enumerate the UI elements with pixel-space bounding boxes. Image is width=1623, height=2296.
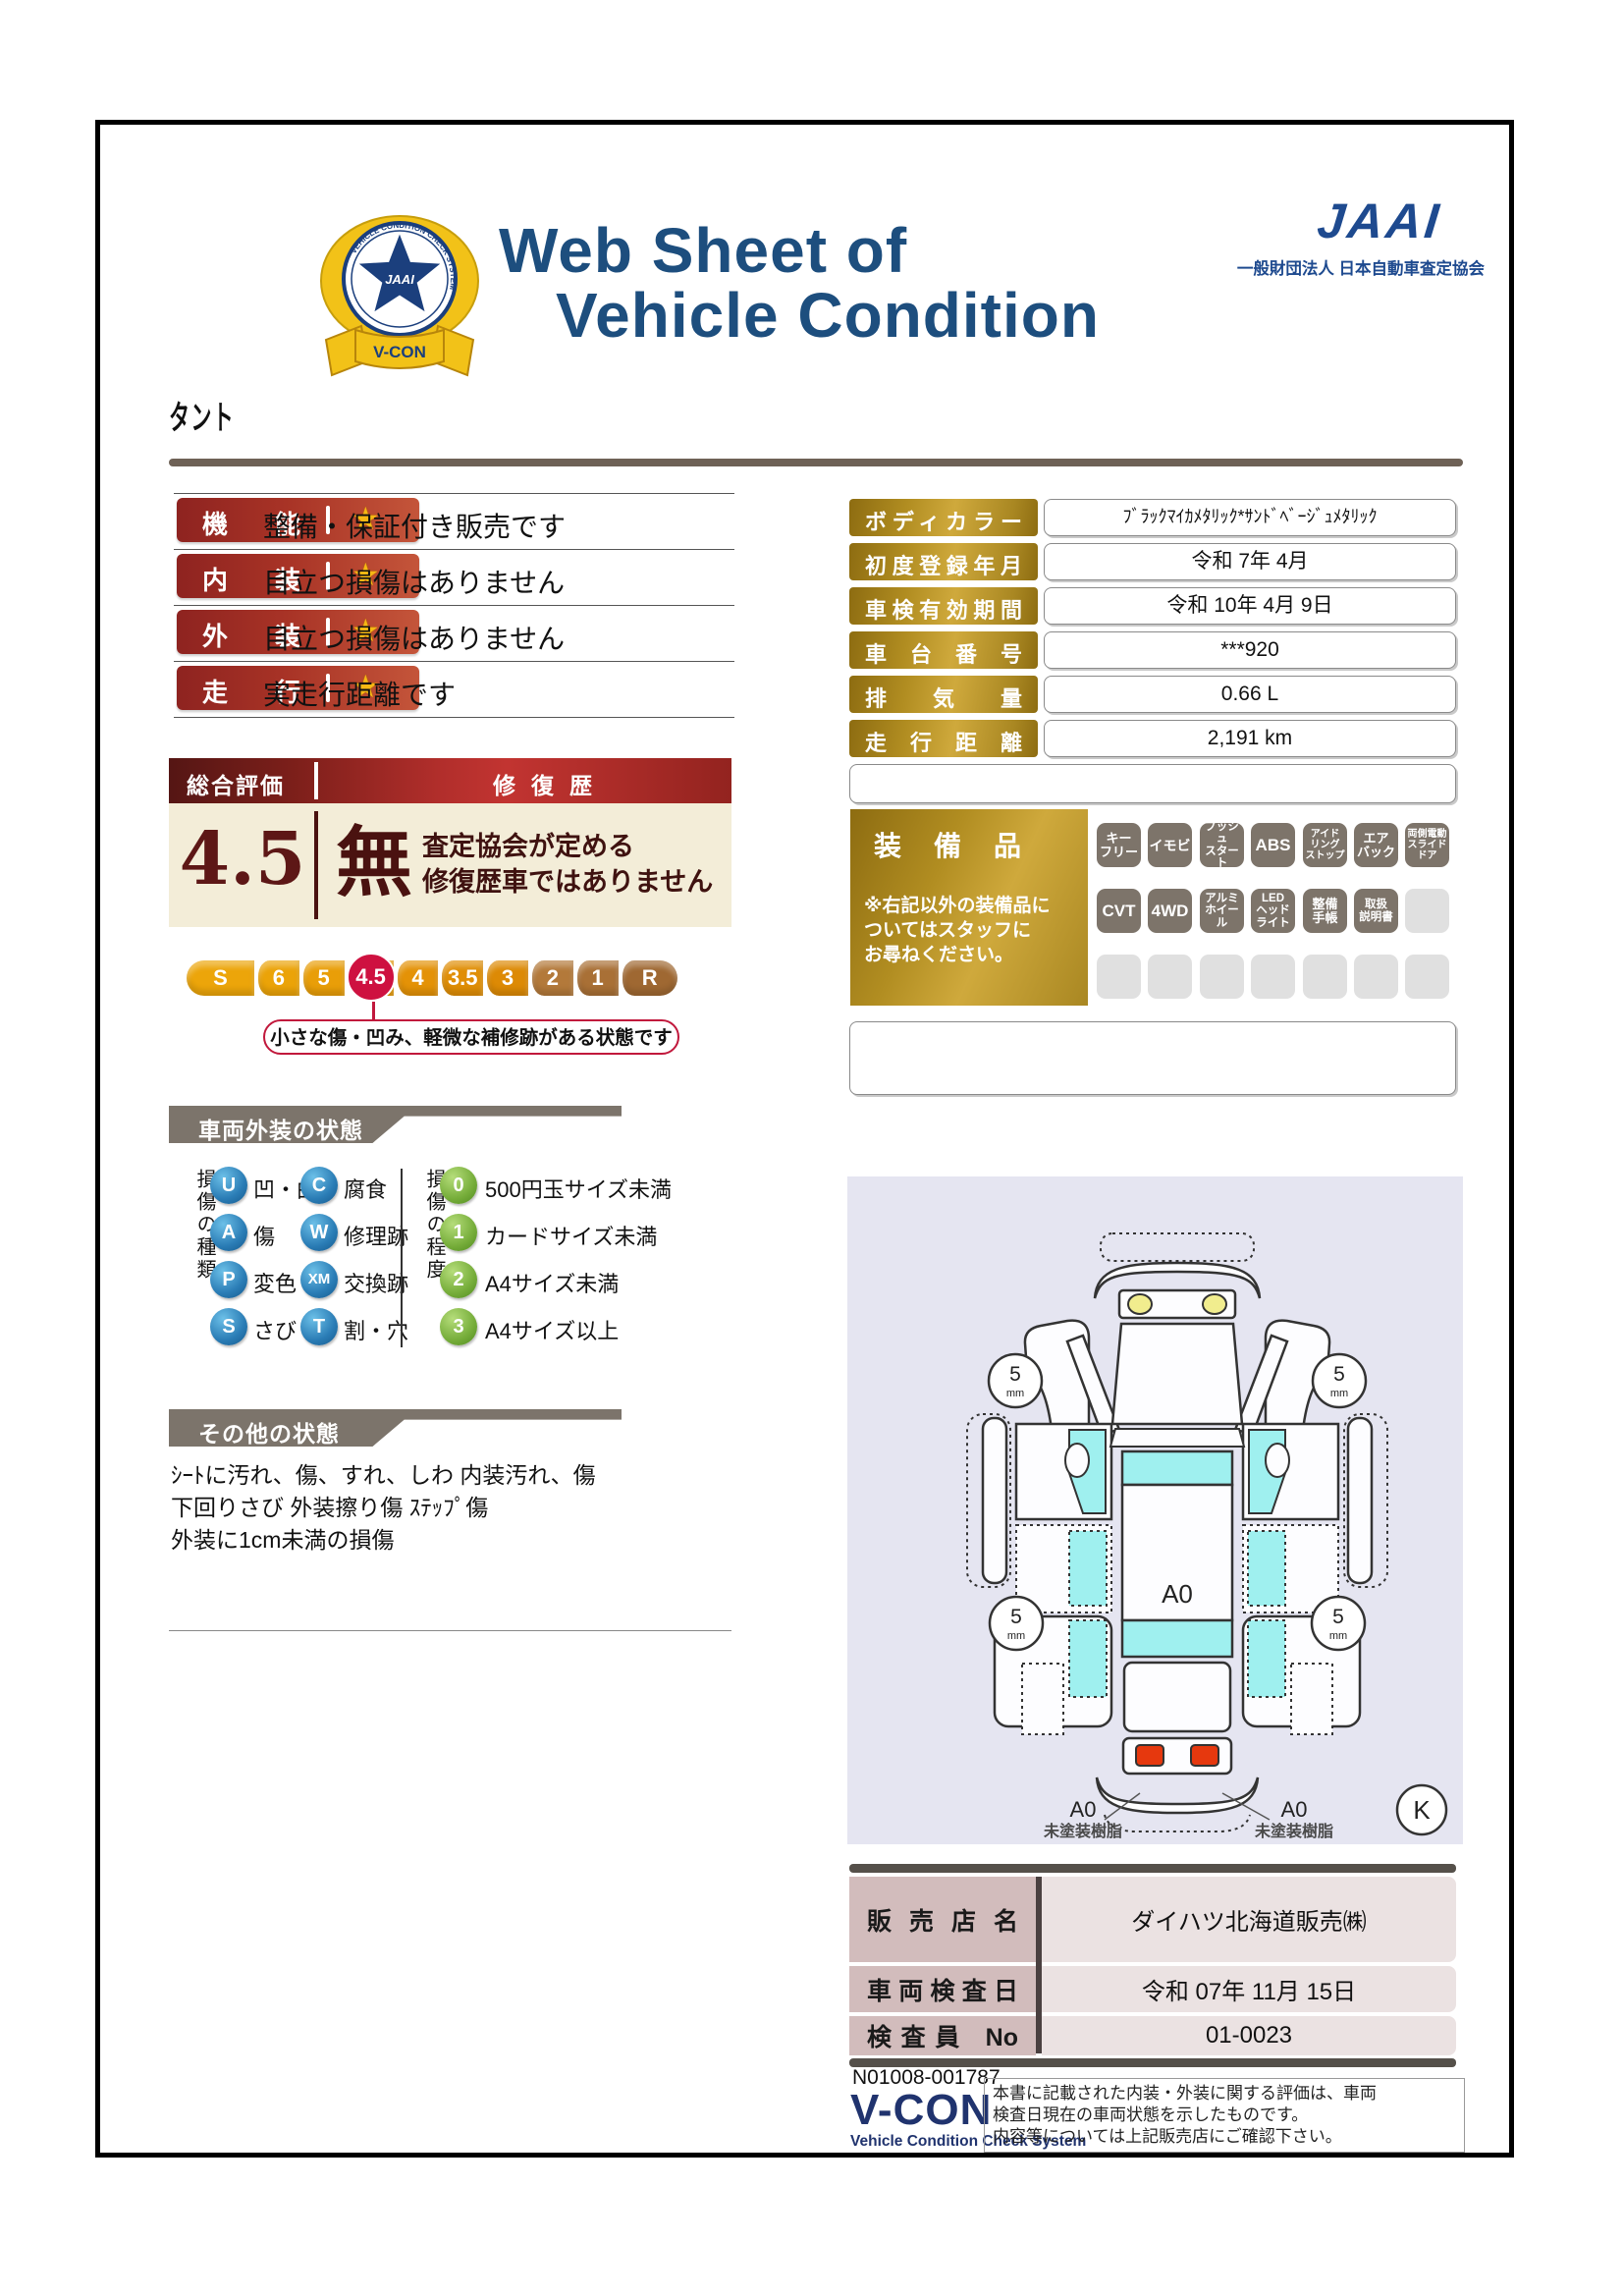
damage-type-name: 変色 [253,1267,297,1298]
detail-label-displacement: 排気量 [849,676,1038,713]
damage-type-U-icon: U [210,1167,247,1204]
empty-field-box [849,1021,1456,1095]
damage-type-P-icon: P [210,1261,247,1298]
rating-desc: 整備・保証付き販売です [263,506,566,545]
equip-cvt: CVT [1097,889,1141,933]
jaai-org-name: 一般財団法人 日本自動車査定協会 [1188,255,1485,279]
equip-empty-slot [1251,955,1295,999]
tail-light-right [1191,1745,1218,1766]
scale-seg-4.5-selected: 4.5 [345,960,394,996]
title-divider-bar [169,459,1463,466]
inspection-date-value: 令和 07年 11月 15日 [1042,1966,1456,2012]
damage-degree-3-icon: 3 [440,1308,477,1345]
repair-history-label: 修復歴 [493,767,608,800]
dealer-label-text: 販売店名 [867,1902,1018,1938]
equip-owners-manual: 取扱 説明書 [1354,889,1398,933]
rating-divider [174,549,734,550]
equip-empty-slot [1405,955,1449,999]
detail-label-first-registration: 初度登録年月 [849,543,1038,580]
detail-label-text: 車検有効期間 [865,598,1022,623]
equip-led-headlights: LED ヘッド ライト [1251,889,1295,933]
cowl [1110,1429,1244,1447]
equip-airbag: エア バック [1354,823,1398,867]
damage-type-name: さび [253,1314,297,1345]
exterior-condition-title: 車両外装の状態 [198,1112,363,1145]
dealer-label-text: 車両検査日 [867,1972,1018,2007]
tread-unit: mm [1330,1388,1348,1399]
scale-seg-S: S [187,960,254,996]
detail-label-chassis-number: 車台番号 [849,631,1038,669]
score-scale: S 6 5 4.5 4 3.5 3 2 1 R [187,960,677,996]
score-callout: 小さな傷・凹み、軽微な補修跡がある状態です [263,1019,679,1055]
dealer-name-label: 販売店名 [849,1877,1036,1962]
sheet-title-line2: Vehicle Condition [556,279,1100,352]
car-damage-diagram: A0 5 mm 5 mm 5 mm 5 mm A0 未塗装樹脂 A0 未塗装樹脂 [847,1176,1463,1844]
repair-history-note: 査定協会が定める 修復歴車ではありません [422,829,713,900]
inspector-no-label: 検査員 No [849,2016,1036,2055]
equip-4wd: 4WD [1148,889,1192,933]
detail-value-bodycolor: ﾌﾞﾗｯｸﾏｲｶﾒﾀﾘｯｸ*ｻﾝﾄﾞﾍﾞｰｼﾞｭﾒﾀﾘｯｸ [1044,499,1456,536]
dealer-table-top-bar [849,1864,1456,1873]
detail-value-displacement: 0.66 L [1044,676,1456,713]
damage-degree-0-icon: 0 [440,1167,477,1204]
scale-seg-3: 3 [483,960,528,996]
overall-header: 総合評価点 修復歴 [169,758,731,803]
tread-unit: mm [1007,1630,1025,1642]
legend-divider [401,1169,403,1347]
tread-value: 5 [1332,1606,1344,1628]
rating-desc: 目立つ損傷はありません [263,618,565,657]
damage-type-A-icon: A [210,1214,247,1251]
selected-score-marker: 4.5 [347,953,396,1002]
headlight-right [1203,1294,1226,1314]
equip-empty-slot [1148,955,1192,999]
damage-degree-name: 500円玉サイズ未満 [485,1173,672,1204]
vehicle-name: タント [169,391,235,439]
detail-label-text: ボディカラー [865,510,1022,534]
equip-idling-stop: アイド リング ストップ [1303,823,1347,867]
overall-body-divider [314,811,318,919]
tread-value: 5 [1010,1606,1022,1628]
disclaimer-note: 本書に記載された内装・外装に関する評価は、車両 検査日現在の車両状態を示したもの… [984,2078,1465,2153]
equipment-note: ※右記以外の装備品に ついてはスタッフに お尋ねください。 [864,894,1050,967]
detail-value-first-registration: 令和 7年 4月 [1044,543,1456,580]
detail-value-chassis-number: ***920 [1044,631,1456,669]
windshield [1112,1324,1242,1424]
other-condition-title: その他の状態 [198,1415,340,1449]
rating-divider [174,717,734,718]
damage-degree-name: カードサイズ未満 [485,1220,657,1251]
equip-empty-slot [1303,955,1347,999]
equip-empty-slot [1097,955,1141,999]
equipment-panel: 装備品 ※右記以外の装備品に ついてはスタッフに お尋ねください。 [850,809,1088,1006]
inspector-no-value: 01-0023 [1042,2016,1456,2055]
empty-field-box [849,764,1456,803]
overall-score: 4.5 [169,817,316,902]
dealer-name-value: ダイハツ北海道販売㈱ [1042,1877,1456,1962]
quarter-window-left [1069,1620,1107,1697]
equip-abs: ABS [1251,823,1295,867]
damage-degree-2-icon: 2 [440,1261,477,1298]
scale-seg-3.5: 3.5 [438,960,483,996]
damage-degree-name: A4サイズ未満 [485,1267,619,1298]
scale-seg-5: 5 [299,960,345,996]
damage-type-name: 修理跡 [344,1220,408,1251]
scale-seg-1: 1 [573,960,619,996]
equip-immobilizer: イモビ [1148,823,1192,867]
damage-type-XM-icon: XM [300,1261,338,1298]
damage-type-W-icon: W [300,1214,338,1251]
unpainted-resin-note-left: 未塗装樹脂 [1043,1822,1122,1840]
damage-type-name: 傷 [253,1220,275,1251]
rating-desc: 目立つ損傷はありません [263,562,565,601]
corner-mark: K [1413,1795,1431,1825]
dealer-table-divider [1036,1877,1042,2053]
damage-type-name: 交換跡 [344,1267,408,1298]
damage-degree-1-icon: 1 [440,1214,477,1251]
detail-value-inspection-period: 令和 10年 4月 9日 [1044,587,1456,625]
detail-label-text: 走行距離 [865,731,1022,755]
damage-type-T-icon: T [300,1308,338,1345]
vehicle-condition-sheet: VEHICLE CONDITION CHECK SYSTEM JAAI V-CO… [0,0,1623,2296]
repair-history-value: 無 [336,811,412,913]
detail-label-inspection-period: 車検有効期間 [849,587,1038,625]
equip-keyfree: キー フリー [1097,823,1141,867]
mirror-left [1065,1444,1089,1477]
rating-divider [174,493,734,494]
tread-value: 5 [1333,1363,1345,1386]
equip-service-book: 整備 手帳 [1303,889,1347,933]
equip-empty-slot [1200,955,1244,999]
detail-label-text: 初度登録年月 [865,554,1022,578]
equipment-title: 装備品 [874,825,1021,864]
tread-unit: mm [1329,1630,1347,1642]
roof-glass-front [1122,1451,1232,1485]
rear-window-left [1069,1531,1107,1606]
tail-light-left [1136,1745,1163,1766]
detail-label-text: 排気量 [865,686,1022,711]
damage-type-name: 割・穴 [344,1314,408,1345]
equip-empty-slot [1354,955,1398,999]
rating-divider [174,605,734,606]
damage-degree-name: A4サイズ以上 [485,1314,619,1345]
bumper-damage-label-right: A0 [1281,1797,1308,1822]
overall-body: 4.5 無 査定協会が定める 修復歴車ではありません [169,803,731,927]
rating-desc: 実走行距離です [263,674,456,713]
equip-push-start: プッシュ スタート [1200,823,1244,867]
tread-unit: mm [1006,1388,1024,1399]
damage-type-name: 腐食 [344,1173,387,1204]
equip-empty-slot [1405,889,1449,933]
overall-header-divider [314,762,318,799]
unpainted-resin-note-right: 未塗装樹脂 [1254,1822,1333,1840]
rating-divider [174,661,734,662]
callout-pointer [372,1002,375,1019]
detail-value-mileage: 2,191 km [1044,720,1456,757]
scale-seg-R: R [619,960,677,996]
damage-type-C-icon: C [300,1167,338,1204]
section-divider [169,1630,731,1631]
dealer-label-text: 検査員 No [867,2018,1018,2053]
rear-window-right [1248,1531,1285,1606]
emblem-ribbon-text: V-CON [373,343,426,361]
rear-glass [1122,1620,1232,1657]
sheet-title-line1: Web Sheet of [499,214,907,287]
detail-label-bodycolor: ボディカラー [849,499,1038,536]
scale-seg-6: 6 [254,960,299,996]
scale-seg-2: 2 [528,960,573,996]
detail-label-text: 車台番号 [865,642,1022,667]
equip-power-slide-doors: 両側電動 スライド ドア [1405,823,1449,867]
mirror-right [1266,1444,1289,1477]
equip-alloy-wheels: アルミ ホイール [1200,889,1244,933]
scale-seg-4: 4 [394,960,439,996]
jaai-logo: JAAI [1264,192,1495,249]
bumper-damage-label-left: A0 [1070,1797,1097,1822]
headlight-left [1128,1294,1152,1314]
inspection-date-label: 車両検査日 [849,1966,1036,2012]
rear-gate [1124,1663,1230,1731]
emblem-center-text: JAAI [385,272,414,287]
quarter-window-right [1248,1620,1285,1697]
roof-damage-label: A0 [1162,1579,1193,1609]
detail-label-mileage: 走行距離 [849,720,1038,757]
other-condition-text: ｼｰﾄに汚れ、傷、すれ、しわ 内装汚れ、傷 下回りさび 外装擦り傷 ｽﾃｯﾌﾟ傷… [171,1459,596,1557]
tread-value: 5 [1009,1363,1021,1386]
damage-type-S-icon: S [210,1308,247,1345]
vcon-logo: V-CON [850,2086,992,2135]
vcon-emblem: VEHICLE CONDITION CHECK SYSTEM JAAI V-CO… [306,214,493,383]
